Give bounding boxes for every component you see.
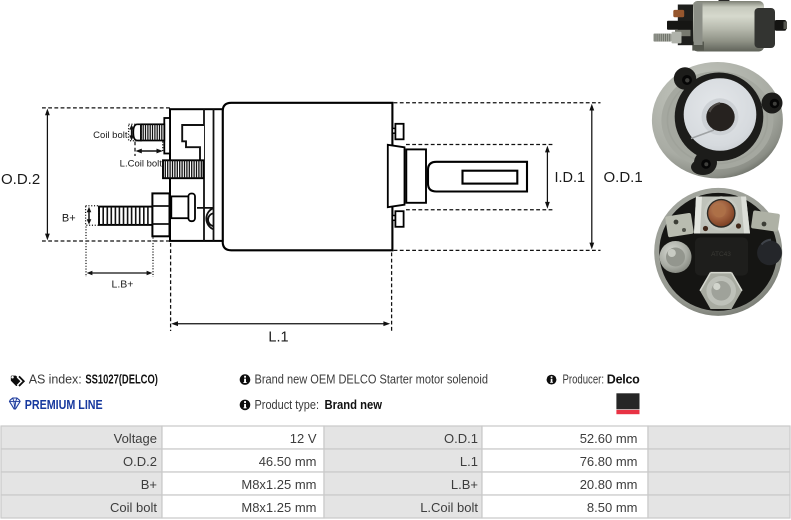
svg-text:8.50 mm: 8.50 mm bbox=[587, 500, 638, 515]
svg-text:M8x1.25 mm: M8x1.25 mm bbox=[241, 500, 316, 515]
svg-text:L.B+: L.B+ bbox=[112, 279, 134, 291]
svg-text:Brand new OEM DELCO Starter mo: Brand new OEM DELCO Starter motor soleno… bbox=[255, 373, 489, 387]
svg-text:12 V: 12 V bbox=[290, 431, 317, 446]
svg-text:O.D.2: O.D.2 bbox=[1, 171, 40, 188]
svg-text:O.D.1: O.D.1 bbox=[604, 169, 643, 186]
svg-text:B+: B+ bbox=[141, 477, 157, 492]
svg-text:Producer:: Producer: bbox=[563, 373, 605, 387]
svg-text:L.1: L.1 bbox=[268, 330, 288, 346]
svg-text:O.D.2: O.D.2 bbox=[123, 454, 157, 469]
svg-text:20.80 mm: 20.80 mm bbox=[580, 477, 638, 492]
svg-text:Voltage: Voltage bbox=[114, 431, 157, 446]
svg-text:52.60 mm: 52.60 mm bbox=[580, 431, 638, 446]
svg-text:L.Coil bolt: L.Coil bolt bbox=[120, 159, 163, 170]
svg-text:SS1027(DELCO): SS1027(DELCO) bbox=[85, 373, 157, 387]
svg-text:B+: B+ bbox=[62, 213, 76, 225]
svg-text:Coil bolt: Coil bolt bbox=[93, 130, 128, 141]
svg-text:ATC43: ATC43 bbox=[711, 251, 731, 258]
svg-text:L.Coil bolt: L.Coil bolt bbox=[420, 500, 478, 515]
svg-text:PREMIUM LINE: PREMIUM LINE bbox=[25, 398, 103, 412]
svg-text:Coil bolt: Coil bolt bbox=[110, 500, 157, 515]
svg-text:Brand new: Brand new bbox=[325, 398, 383, 412]
svg-text:Delco: Delco bbox=[607, 373, 640, 387]
svg-text:L.B+: L.B+ bbox=[451, 477, 478, 492]
svg-text:O.D.1: O.D.1 bbox=[444, 431, 478, 446]
svg-text:M8x1.25 mm: M8x1.25 mm bbox=[241, 477, 316, 492]
svg-text:I.D.1: I.D.1 bbox=[555, 170, 586, 186]
svg-text:46.50 mm: 46.50 mm bbox=[259, 454, 317, 469]
svg-text:L.1: L.1 bbox=[460, 454, 478, 469]
svg-text:Product type:: Product type: bbox=[255, 398, 320, 412]
svg-text:76.80 mm: 76.80 mm bbox=[580, 454, 638, 469]
svg-text:AS index:: AS index: bbox=[29, 373, 82, 387]
